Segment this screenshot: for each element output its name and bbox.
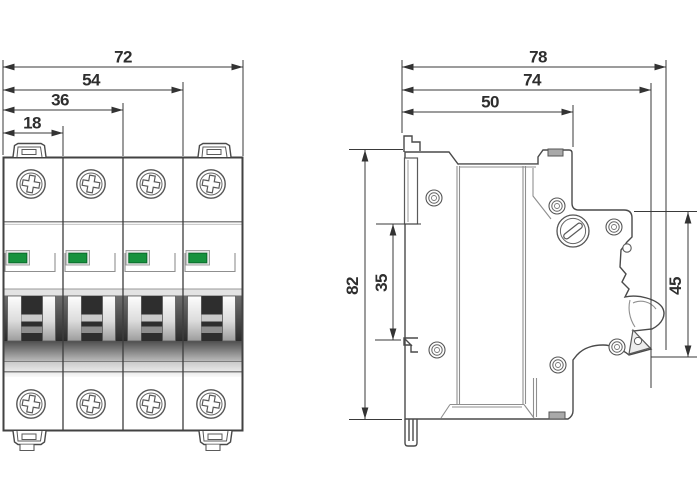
slotted-screw: [557, 215, 589, 247]
dim-label-50: 50: [481, 93, 499, 112]
dimension-overall-height: 82: [343, 150, 368, 419]
dimension-front-depth: 50: [402, 93, 573, 116]
linkage-pin: [634, 337, 641, 344]
dim-label-74: 74: [523, 71, 542, 90]
rivet-5: [550, 357, 566, 373]
dim-label-54: 54: [82, 71, 101, 90]
din-rail-tab: [405, 158, 418, 224]
dim-label-82: 82: [343, 277, 362, 295]
dimension-rail-recess: 35: [372, 224, 396, 340]
front-clip-top-right: [198, 144, 231, 158]
side-body-outline: [405, 150, 664, 419]
technical-drawing: 72 54 36 18: [0, 0, 700, 500]
front-clip-top-left: [13, 144, 46, 158]
rivet-1: [426, 190, 442, 206]
dimension-two-pole: 36: [3, 91, 123, 114]
rivet-3: [606, 219, 622, 235]
front-dimensions: 72 54 36 18: [3, 48, 243, 157]
dimension-three-pole: 54: [3, 71, 183, 94]
front-view: 72 54 36 18: [3, 48, 243, 451]
drawing-canvas: 72 54 36 18: [0, 0, 700, 500]
dim-label-35: 35: [372, 274, 391, 292]
rivet-6: [609, 339, 625, 355]
dimension-body-depth: 74: [402, 71, 651, 94]
dim-label-18: 18: [23, 114, 41, 133]
rivet-4: [429, 342, 445, 358]
rail-clip-tab-bottom: [405, 419, 417, 446]
dim-label-72: 72: [114, 48, 132, 67]
dimension-total-width: 72: [3, 48, 243, 71]
dim-label-45: 45: [666, 277, 685, 295]
front-clip-bottom-right: [199, 431, 232, 451]
dimension-front-height: 45: [666, 212, 691, 357]
extension-lines: [3, 60, 243, 156]
dimension-one-pole: 18: [3, 114, 63, 137]
dim-label-78: 78: [529, 48, 547, 67]
lever-pivot: [623, 244, 631, 252]
rivet-2: [549, 198, 565, 214]
front-clip-bottom-left: [13, 431, 46, 451]
dim-label-36: 36: [51, 91, 69, 110]
terminal-marking-top: [548, 149, 563, 156]
side-view: 78 74 50 82 35: [343, 48, 697, 447]
rail-hook-top: [404, 136, 420, 152]
dimension-overall-depth: 78: [402, 48, 666, 71]
terminal-marking-bottom: [549, 412, 565, 419]
